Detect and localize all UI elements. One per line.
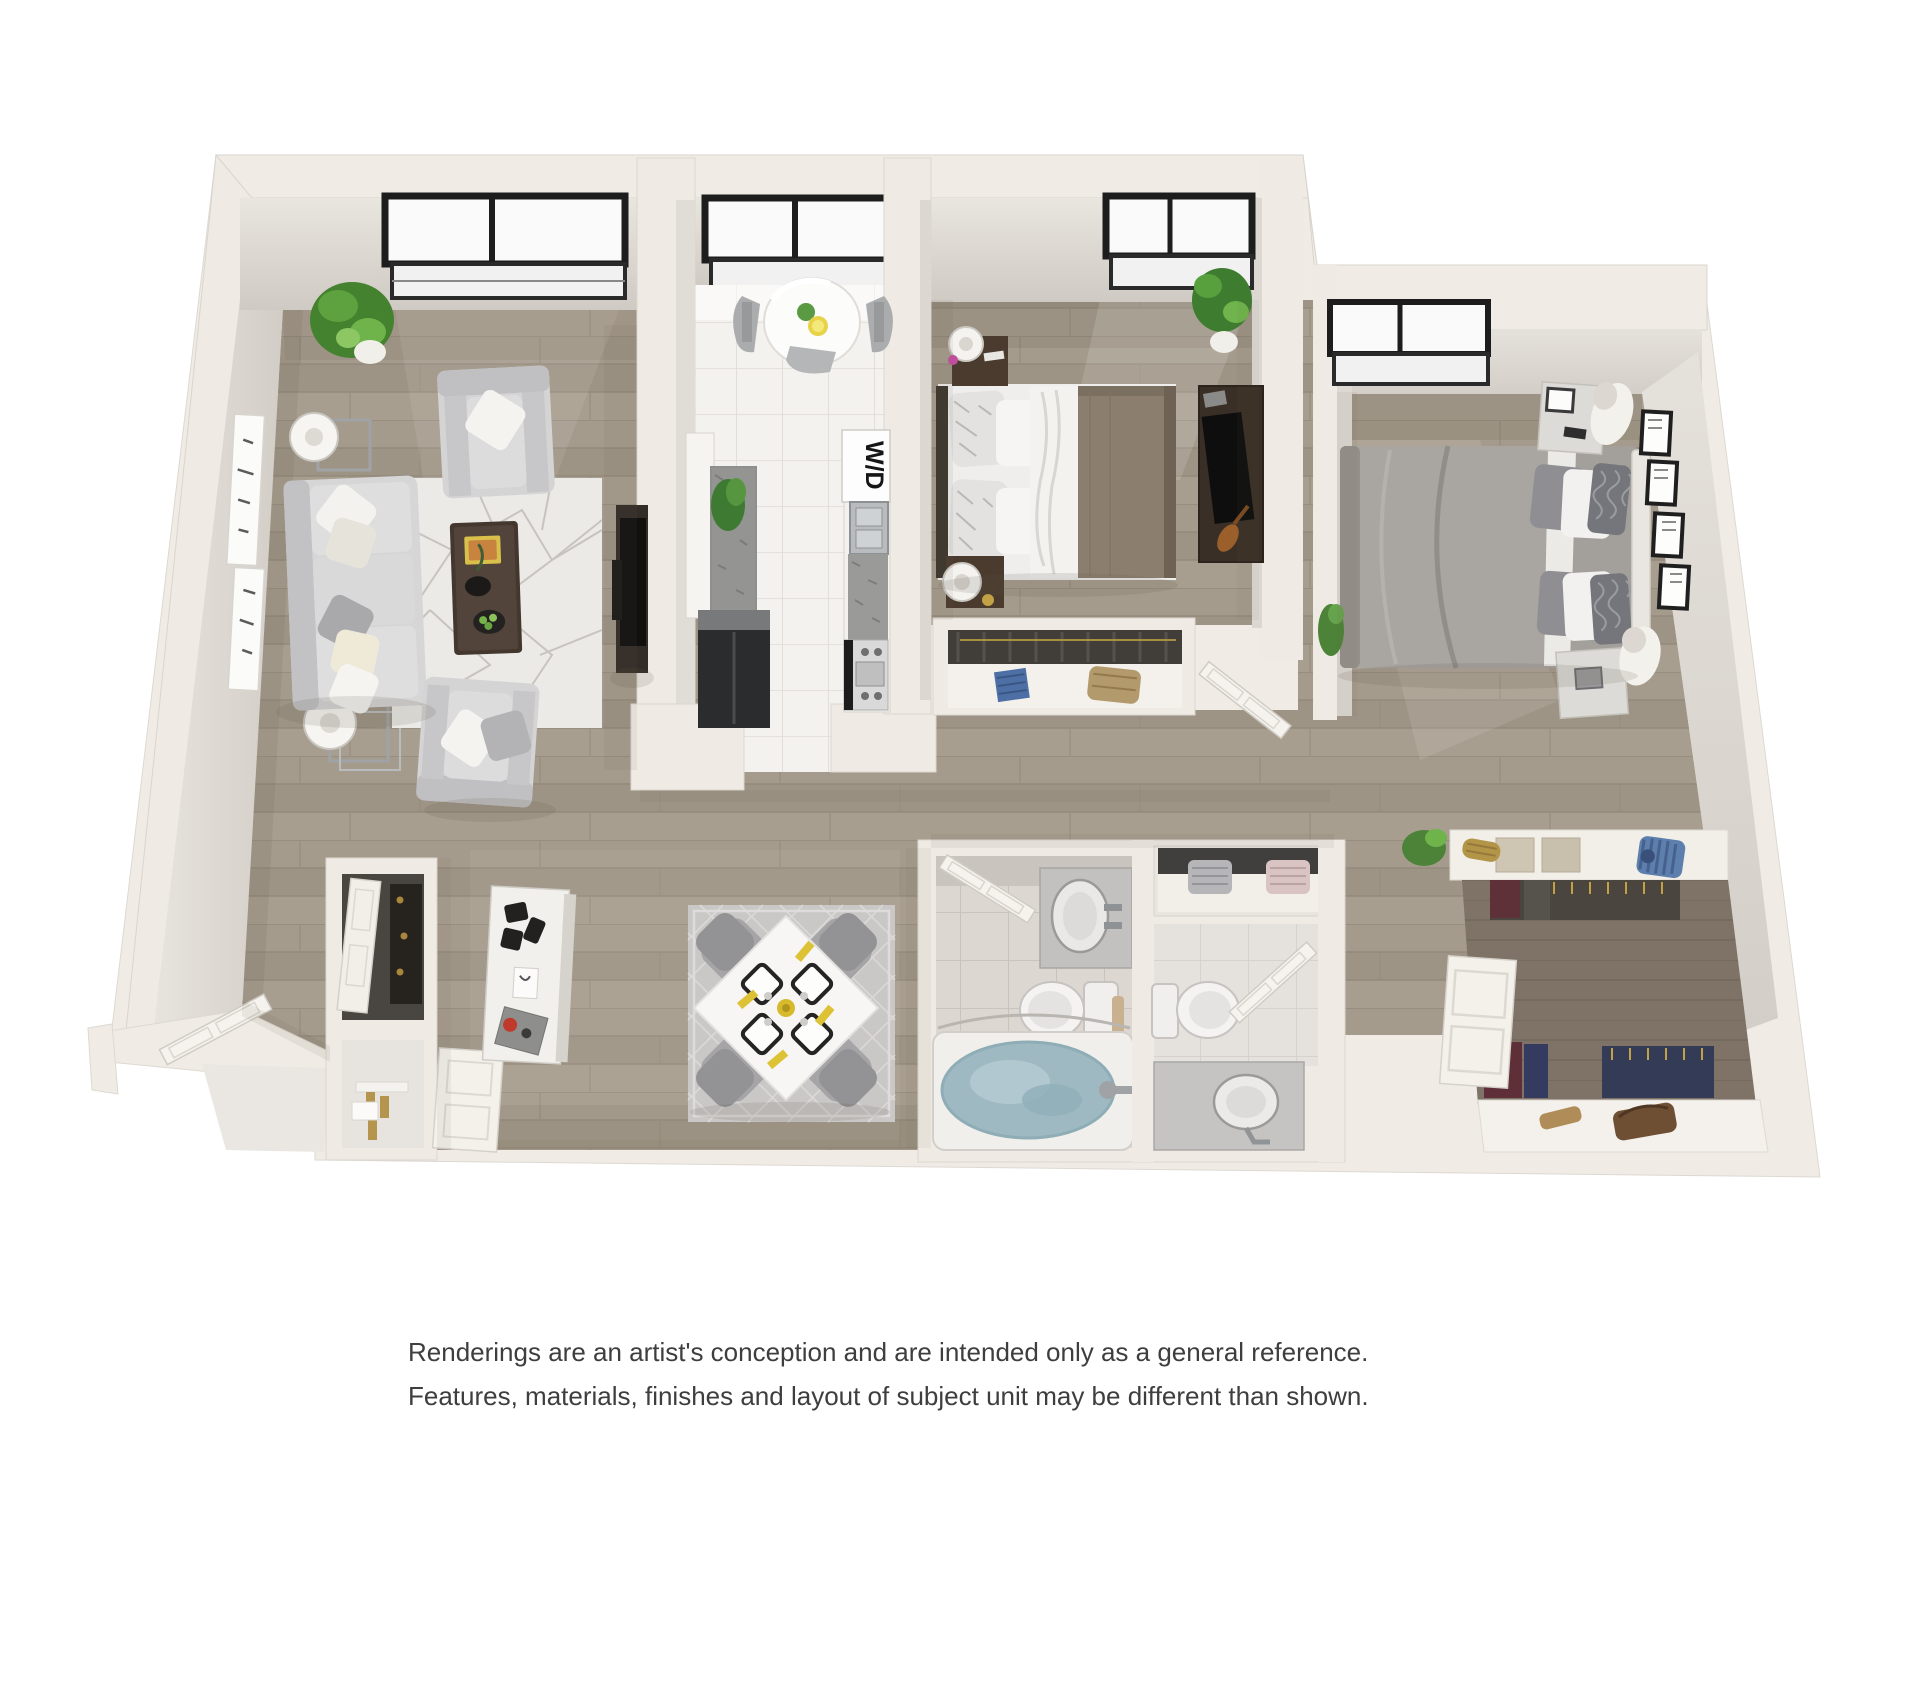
svg-text:Features, materials, finishes: Features, materials, finishes and layout… [408, 1381, 1369, 1411]
svg-text:W/D: W/D [860, 441, 888, 490]
svg-text:Renderings are an artist's con: Renderings are an artist's conception an… [408, 1337, 1368, 1367]
